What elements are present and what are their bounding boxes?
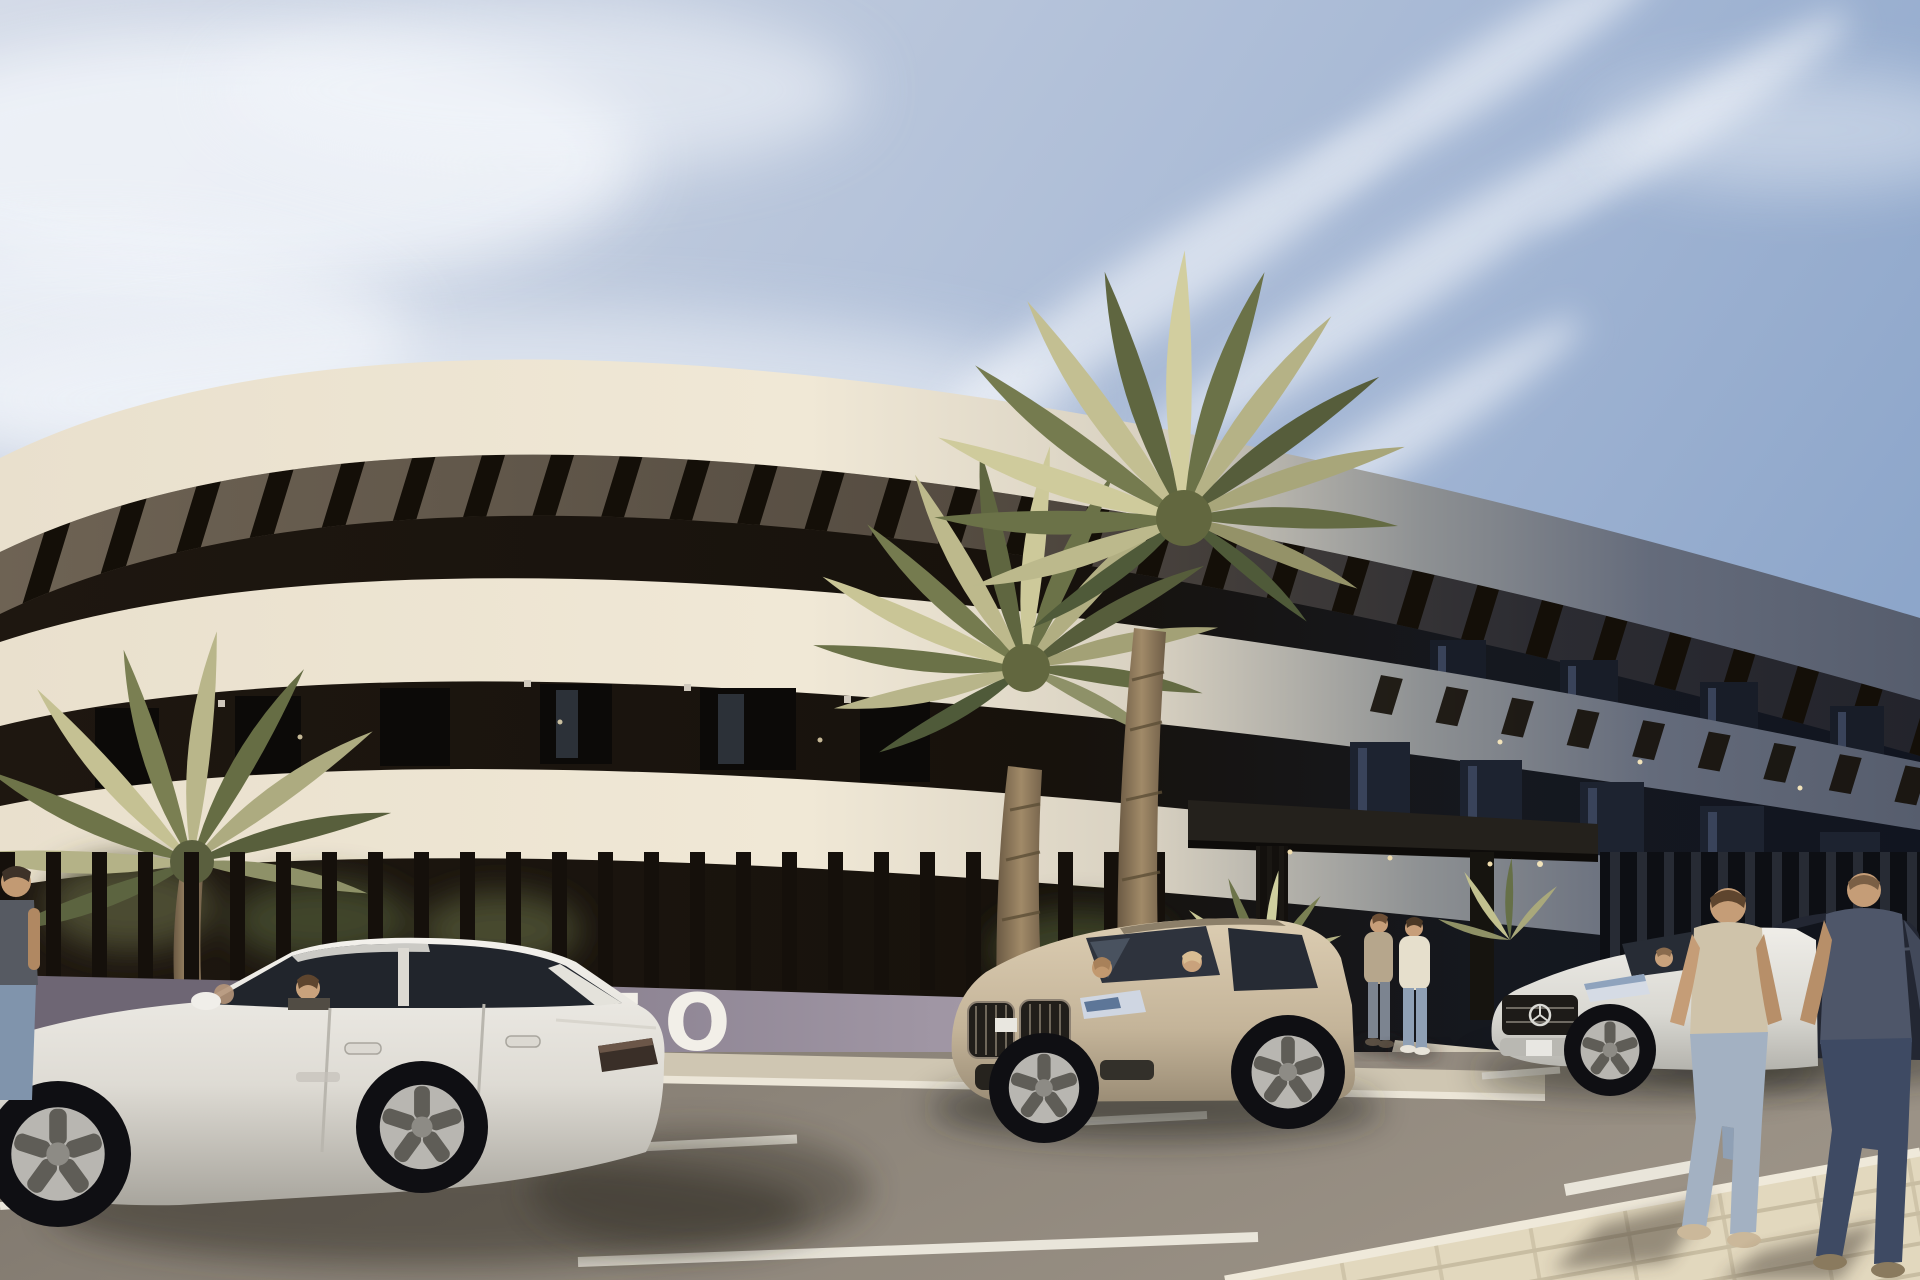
scene-svg: TO — [0, 0, 1920, 1280]
render-viewport: TO — [0, 0, 1920, 1280]
